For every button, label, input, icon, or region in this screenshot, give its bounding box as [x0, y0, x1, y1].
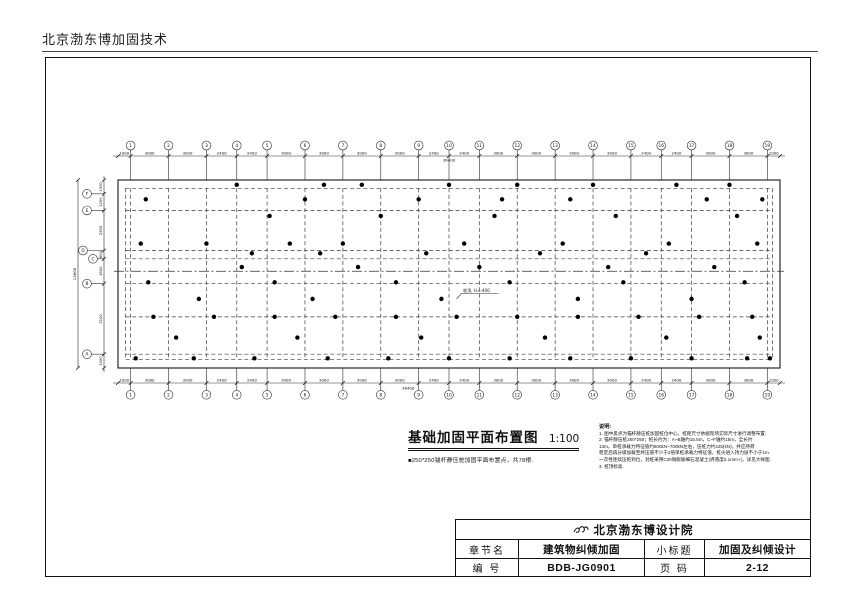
svg-text:13: 13 [552, 392, 558, 398]
plan-drawing: 1234567891011121314151617181910003000300… [70, 128, 800, 418]
svg-text:8: 8 [379, 392, 382, 398]
svg-text:3000: 3000 [319, 377, 329, 382]
svg-text:7: 7 [342, 143, 345, 149]
svg-text:16: 16 [659, 143, 665, 149]
svg-text:2400: 2400 [671, 377, 681, 382]
svg-text:10: 10 [446, 392, 452, 398]
titleblock-value-chapter: 建筑物纠倾加固 [518, 539, 644, 558]
svg-text:6: 6 [304, 143, 307, 149]
svg-text:A: A [86, 352, 89, 358]
svg-text:600: 600 [99, 250, 103, 258]
svg-text:2400: 2400 [459, 377, 469, 382]
svg-text:17: 17 [689, 392, 695, 398]
svg-text:7: 7 [342, 392, 345, 398]
svg-text:18: 18 [727, 392, 733, 398]
svg-text:3000: 3000 [357, 150, 367, 155]
svg-text:18: 18 [727, 143, 733, 149]
titleblock-value-number: BDB-JG0901 [518, 558, 644, 576]
svg-text:2400: 2400 [641, 377, 651, 382]
svg-text:1000: 1000 [769, 150, 779, 155]
svg-text:1: 1 [129, 143, 132, 149]
svg-text:36400: 36400 [443, 158, 456, 163]
note-line: 3. 桩顶标高. [599, 464, 809, 471]
svg-text:3000: 3000 [493, 377, 503, 382]
titleblock-value-subtitle: 加固及纠倾设计 [704, 539, 810, 558]
titleblock-label-chapter: 章节名 [456, 539, 518, 558]
svg-text:1800: 1800 [99, 266, 103, 276]
header-rule [42, 51, 818, 52]
svg-text:2400: 2400 [217, 150, 227, 155]
svg-text:15: 15 [628, 392, 634, 398]
svg-text:3000: 3000 [183, 150, 193, 155]
svg-text:3000: 3000 [607, 150, 617, 155]
company-logo-icon [573, 524, 589, 535]
svg-text:2900: 2900 [99, 225, 103, 235]
figure-title: 基础加固平面布置图 [408, 430, 539, 446]
svg-text:3000: 3000 [743, 377, 753, 382]
notes-block: 说明: 1. 图中黑点为锚杆静压桩加固桩位中心，桩距尺寸依据现场实际尺寸进行调整… [599, 424, 809, 470]
svg-text:3000: 3000 [395, 150, 405, 155]
svg-text:3000: 3000 [145, 377, 155, 382]
page-header-company: 北京渤东博加固技术 [42, 29, 168, 48]
svg-text:2400: 2400 [247, 150, 257, 155]
svg-text:3000: 3000 [607, 377, 617, 382]
svg-text:3: 3 [205, 143, 208, 149]
svg-text:3000: 3000 [319, 150, 329, 155]
svg-text:1000: 1000 [99, 182, 103, 192]
svg-text:3000: 3000 [183, 377, 193, 382]
svg-text:8: 8 [379, 143, 382, 149]
svg-text:16: 16 [659, 392, 665, 398]
svg-text:3000: 3000 [531, 150, 541, 155]
svg-text:2400: 2400 [459, 150, 469, 155]
titleblock-value-page: 2-12 [704, 558, 810, 576]
svg-text:3000: 3000 [706, 377, 716, 382]
svg-text:3000: 3000 [357, 377, 367, 382]
svg-text:13600: 13600 [72, 267, 77, 280]
svg-text:1000: 1000 [119, 377, 129, 382]
svg-text:2: 2 [167, 392, 170, 398]
svg-text:1000: 1000 [769, 377, 779, 382]
svg-text:9: 9 [417, 392, 420, 398]
svg-text:2400: 2400 [671, 150, 681, 155]
svg-text:3000: 3000 [493, 150, 503, 155]
svg-text:5100: 5100 [99, 314, 103, 324]
svg-text:5: 5 [266, 143, 269, 149]
svg-text:11: 11 [477, 392, 483, 398]
svg-text:桩顶, H=-400: 桩顶, H=-400 [463, 287, 490, 293]
svg-text:14: 14 [590, 143, 596, 149]
titleblock: 北京渤东博设计院 章节名 建筑物纠倾加固 小标题 加固及纠倾设计 编 号 BDB… [455, 519, 811, 577]
svg-text:4: 4 [235, 392, 238, 398]
svg-text:1: 1 [129, 392, 132, 398]
svg-text:6: 6 [304, 392, 307, 398]
svg-text:5: 5 [266, 392, 269, 398]
svg-text:3000: 3000 [706, 150, 716, 155]
svg-text:3000: 3000 [281, 377, 291, 382]
svg-text:3000: 3000 [145, 150, 155, 155]
svg-text:12: 12 [514, 392, 520, 398]
titleblock-label-number: 编 号 [456, 558, 518, 576]
svg-text:3000: 3000 [281, 150, 291, 155]
svg-text:4: 4 [235, 143, 238, 149]
notes-title: 说明: [599, 424, 809, 431]
svg-text:3000: 3000 [395, 377, 405, 382]
note-line: 稳定后再分级加载至终压值不少于2倍单桩承载力特征值，桩尖进入持力层不小于1m. [599, 450, 809, 457]
titleblock-label-page: 页 码 [644, 558, 704, 576]
svg-text:2400: 2400 [641, 150, 651, 155]
svg-text:11: 11 [477, 143, 483, 149]
svg-text:1000: 1000 [99, 356, 103, 366]
svg-text:3000: 3000 [569, 377, 579, 382]
svg-text:1000: 1000 [119, 150, 129, 155]
svg-text:3000: 3000 [531, 377, 541, 382]
titleblock-company-row: 北京渤东博设计院 [456, 520, 810, 539]
figure-legend: ■250*250锚杆静压桩加固平面布置点，共78根. [408, 455, 579, 464]
svg-text:14: 14 [590, 392, 596, 398]
svg-text:D: D [81, 248, 85, 254]
svg-text:3: 3 [205, 392, 208, 398]
svg-text:10: 10 [446, 143, 452, 149]
note-line: 一次性连续压桩到位，封桩采用C30微膨胀细石混凝土(坍落度0.1mm+)，详见大… [599, 457, 809, 464]
svg-text:9: 9 [417, 143, 420, 149]
titleblock-label-subtitle: 小标题 [644, 539, 704, 558]
svg-text:2400: 2400 [429, 150, 439, 155]
svg-text:19: 19 [765, 143, 771, 149]
svg-text:1200: 1200 [99, 197, 103, 207]
titleblock-company-name: 北京渤东博设计院 [594, 522, 694, 538]
svg-text:3000: 3000 [569, 150, 579, 155]
svg-text:2400: 2400 [429, 377, 439, 382]
svg-text:17: 17 [689, 143, 695, 149]
svg-text:C: C [91, 256, 94, 262]
svg-text:B: B [86, 281, 89, 287]
svg-text:2400: 2400 [247, 377, 257, 382]
svg-text:13: 13 [552, 143, 558, 149]
svg-text:12: 12 [514, 143, 520, 149]
svg-text:F: F [86, 191, 89, 197]
figure-scale: 1:100 [549, 433, 579, 445]
svg-text:36400: 36400 [402, 385, 415, 390]
svg-text:E: E [86, 208, 89, 214]
svg-text:3000: 3000 [743, 150, 753, 155]
svg-text:15: 15 [628, 143, 634, 149]
svg-text:2: 2 [167, 143, 170, 149]
note-line: 2. 锚杆静压桩250*250；桩长约为：A~B轴约15.5m，C~F轴约15m… [599, 437, 809, 444]
svg-text:19: 19 [765, 392, 771, 398]
figure-title-block: 基础加固平面布置图 1:100 ■250*250锚杆静压桩加固平面布置点，共78… [408, 426, 579, 464]
svg-text:2400: 2400 [217, 377, 227, 382]
